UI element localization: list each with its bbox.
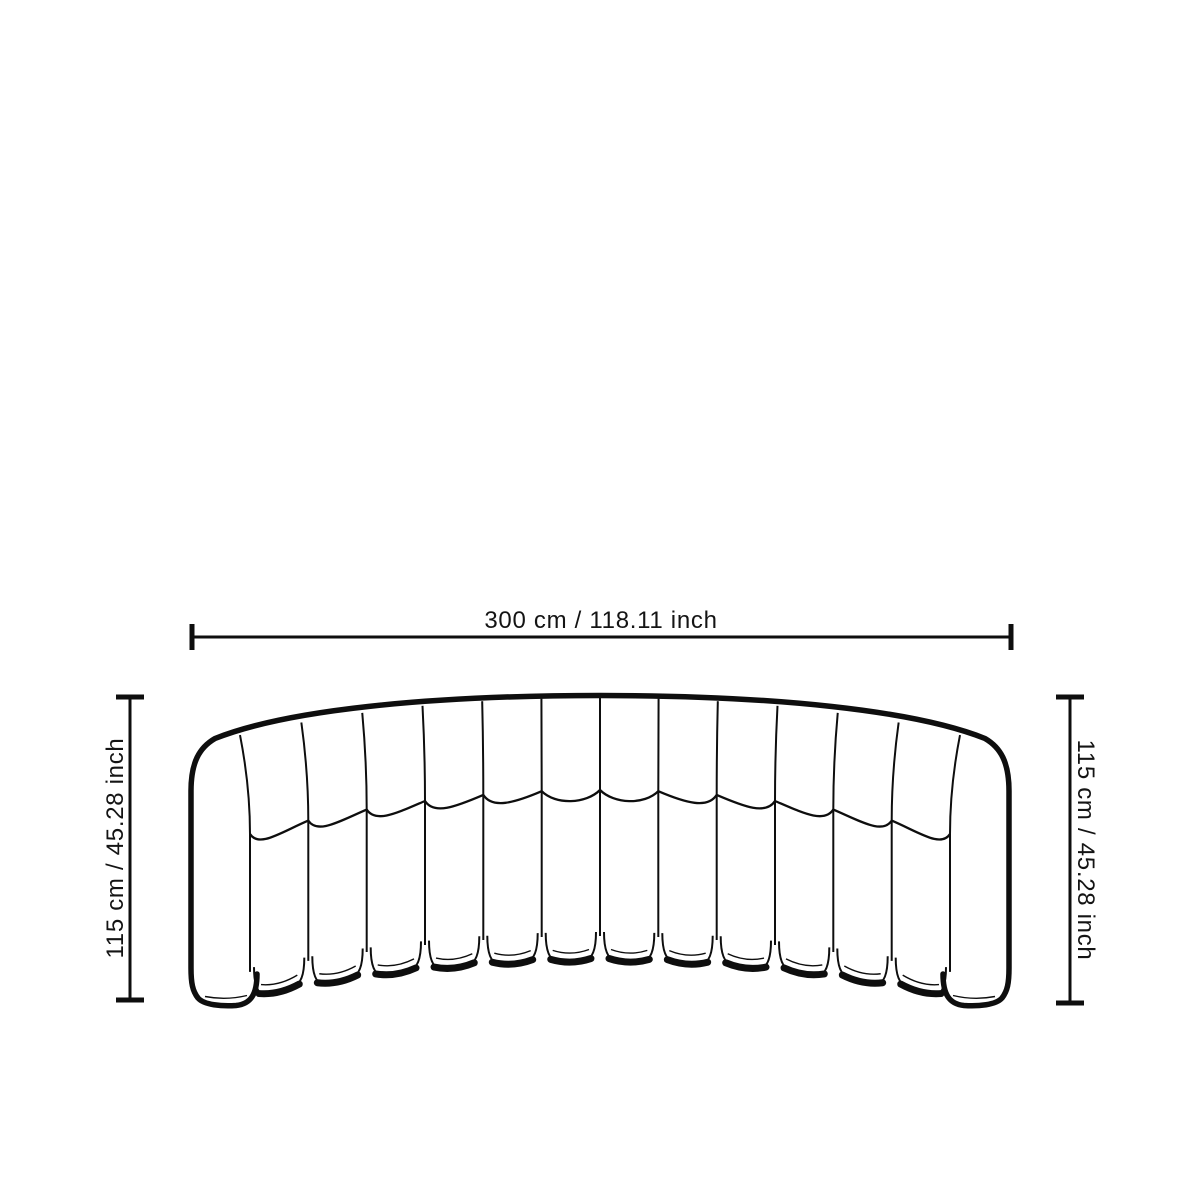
sofa-drawing: [191, 696, 1009, 1006]
channel-bottom-shadow: [609, 959, 649, 963]
channel-bottom-highlight: [319, 966, 355, 974]
channel-divider: [423, 706, 426, 945]
width-dimension: 300 cm / 118.11 inch: [192, 607, 1011, 650]
channel-bottom-highlight: [494, 951, 530, 956]
channel-bottom-highlight: [436, 954, 472, 960]
channel-divider: [833, 713, 837, 952]
cushion-top-curve: [483, 791, 541, 803]
channel-divider: [950, 735, 960, 972]
channel-bottom-shadow: [726, 963, 766, 969]
channel-bottom-highlight: [669, 951, 705, 956]
channel-bottom-highlight: [844, 966, 880, 974]
left-arm-bottom-highlight: [205, 996, 247, 999]
channel-divider: [240, 735, 250, 972]
height-dimension-left: 115 cm / 45.28 inch: [102, 697, 144, 1000]
channel-bottom-highlight: [611, 950, 647, 954]
width-dimension-label: 300 cm / 118.11 inch: [484, 607, 717, 634]
cushion-top-curve: [308, 810, 366, 827]
height-dimension-right: 115 cm / 45.28 inch: [1056, 697, 1099, 1003]
channel-divider: [482, 701, 483, 940]
height-right-label: 115 cm / 45.28 inch: [1072, 740, 1099, 961]
channel-bottom-shadow: [434, 963, 474, 969]
cushion-top-curve: [833, 810, 891, 827]
cushion-top-curve: [658, 791, 716, 803]
diagram-canvas: 300 cm / 118.11 inch 115 cm / 45.28 inch…: [0, 0, 1200, 1200]
cushion-top-curve: [250, 821, 308, 840]
cushion-top-curve: [367, 801, 425, 816]
channel-divider: [301, 723, 308, 961]
channel-divider: [892, 723, 899, 961]
sofa-dimension-diagram: 300 cm / 118.11 inch 115 cm / 45.28 inch…: [0, 0, 1200, 1200]
channel-bottom-shadow: [842, 975, 882, 983]
channel-bottom-shadow: [551, 959, 591, 963]
channel-bottom-shadow: [259, 984, 299, 994]
channel-bottom-highlight: [261, 975, 297, 985]
channel-divider: [717, 701, 718, 940]
channel-bottom-highlight: [728, 954, 764, 960]
channel-bottom-shadow: [901, 984, 941, 994]
channel-bottom-shadow: [376, 968, 416, 975]
channel-divider: [362, 713, 366, 952]
cushion-top-curve: [600, 790, 658, 801]
cushion-top-curve: [775, 801, 833, 816]
channel-bottom-highlight: [903, 975, 939, 985]
channel-bottom-highlight: [553, 950, 589, 954]
channel-bottom-highlight: [378, 959, 414, 966]
cushion-top-curve: [892, 821, 950, 840]
channel-bottom-highlight: [786, 959, 822, 966]
channel-divider: [775, 706, 778, 945]
cushion-top-curve: [717, 795, 775, 808]
channel-bottom-shadow: [492, 960, 532, 965]
cushion-top-curve: [425, 795, 483, 808]
channel-bottom-shadow: [667, 960, 707, 965]
channel-bottom-shadow: [317, 975, 357, 983]
channel-bottom-shadow: [784, 968, 824, 975]
right-arm-bottom-highlight: [953, 996, 995, 999]
cushion-top-curve: [542, 790, 600, 801]
height-left-label: 115 cm / 45.28 inch: [102, 738, 129, 959]
